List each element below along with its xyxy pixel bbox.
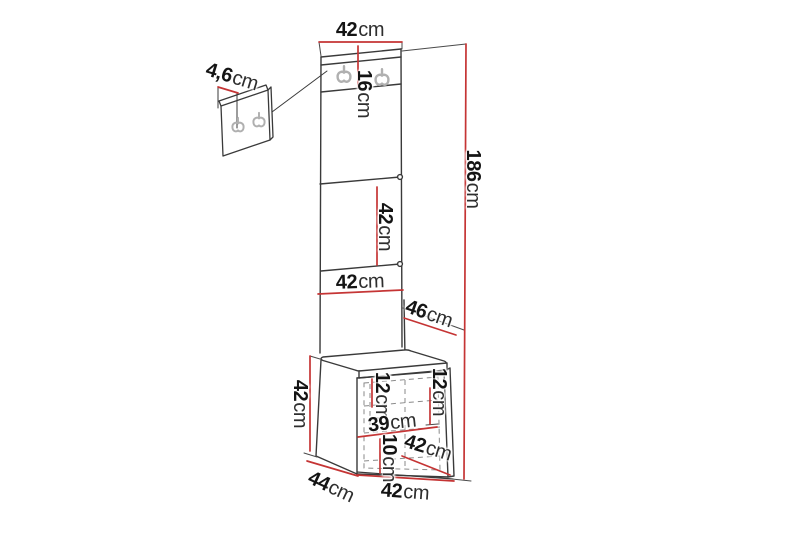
coat-hook-icon [338, 66, 351, 82]
dimension-diagram-canvas: 42cm 16cm 4,6cm 186cm 42cm 42cm 46cm 42c… [0, 0, 800, 533]
coat-hook-icon [376, 69, 389, 85]
dim-label-top-width: 42cm [336, 20, 384, 40]
furniture-dimension-diagram [0, 0, 800, 533]
dim-label-total-height: 186cm [463, 149, 483, 208]
coat-hook-icon [232, 118, 243, 132]
dim-label-door-inset-right: 12cm [429, 368, 449, 416]
dim-label-hook-panel-height: 16cm [354, 70, 374, 118]
coat-hook-icon [253, 113, 264, 127]
dim-label-panel-width: 42cm [336, 271, 385, 293]
callout-line [272, 71, 327, 112]
dim-line-total-height [464, 44, 466, 479]
dim-label-bench-width: 42cm [380, 480, 430, 503]
dim-label-plinth-height: 10cm [379, 434, 399, 482]
dim-label-mid-panel-height: 42cm [375, 203, 395, 251]
dim-label-bench-height: 42cm [290, 380, 310, 428]
